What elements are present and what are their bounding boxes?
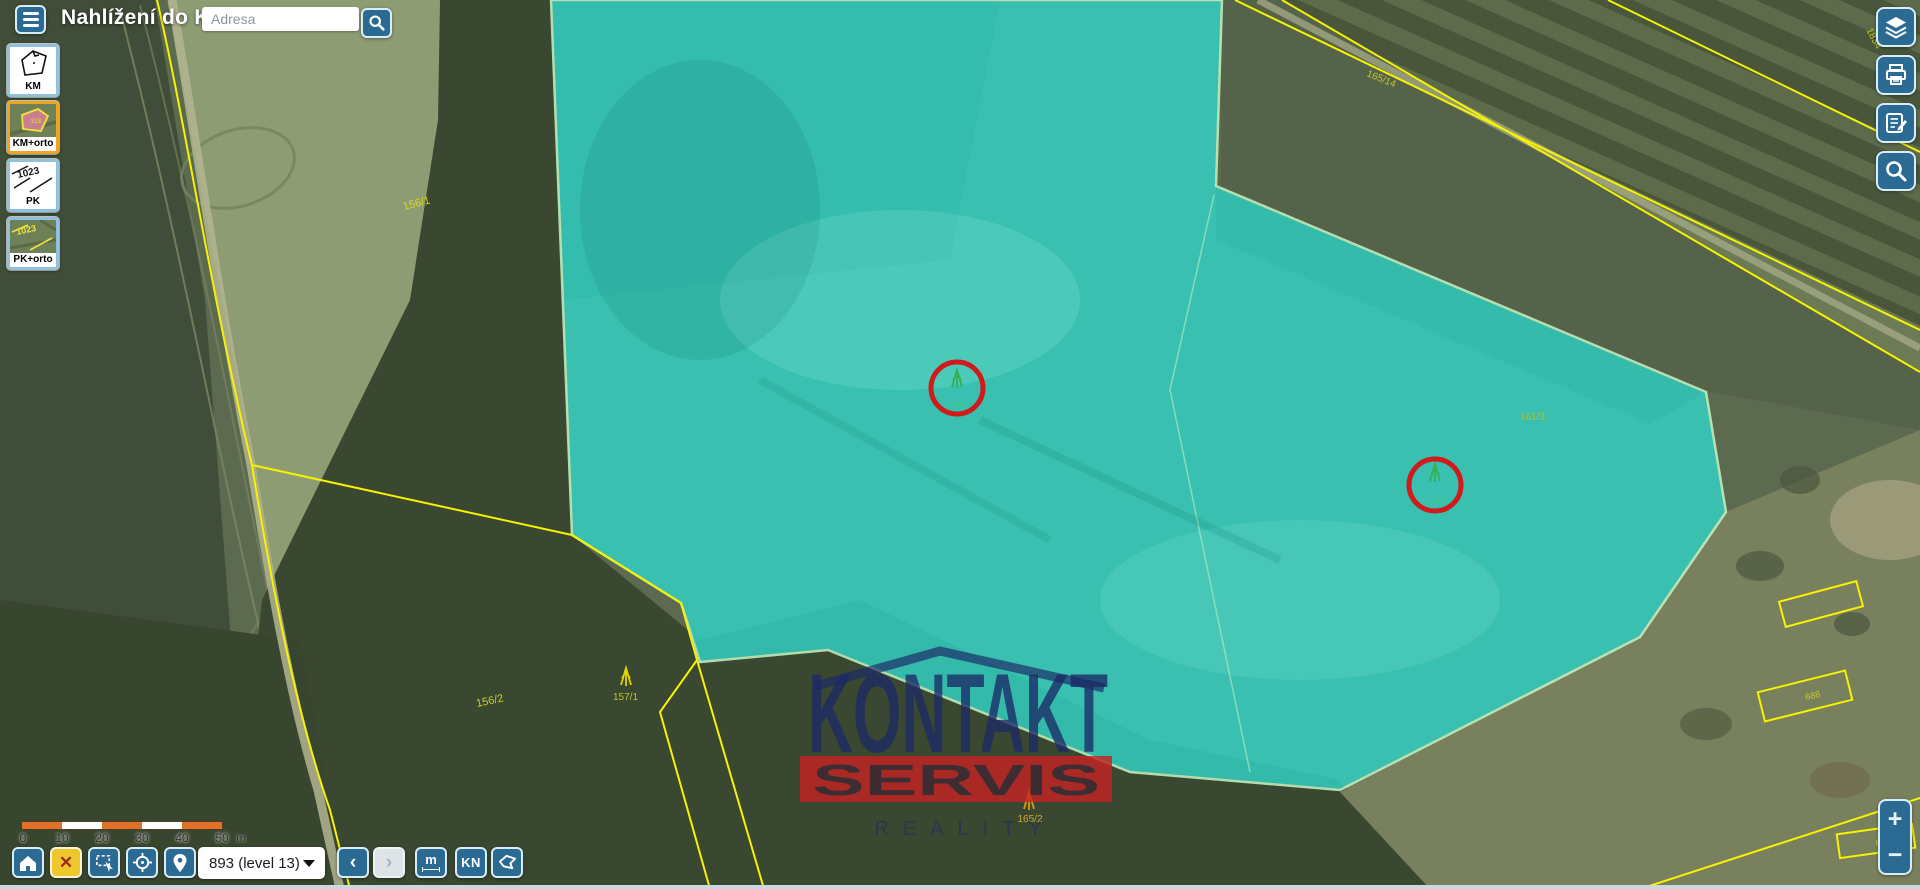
measure-button[interactable]: m <box>415 847 447 878</box>
crosshair-icon <box>132 852 153 873</box>
kn-info-button[interactable]: KN <box>455 847 487 878</box>
scale-tick: 50 <box>215 831 228 845</box>
parcel-label: 160/2 <box>1422 496 1447 507</box>
chevron-left-icon: ‹ <box>350 853 356 872</box>
kn-label: KN <box>461 855 481 870</box>
chevron-down-icon <box>303 860 315 867</box>
watermark-servis: SERVIS <box>812 756 1100 805</box>
scale-unit: m <box>236 831 246 845</box>
print-button[interactable] <box>1876 55 1916 95</box>
scale-bar <box>22 822 222 829</box>
scale-tick: 30 <box>135 831 148 845</box>
close-tool-button[interactable]: ✕ <box>50 847 82 878</box>
pk-orto-thumbnail: 1023 <box>10 220 56 253</box>
printer-icon <box>1884 63 1908 87</box>
forest-bottom-left <box>0 600 345 889</box>
measure-icon: m <box>422 853 440 872</box>
notes-icon <box>1884 111 1908 135</box>
bottom-edge-bar <box>0 885 1920 889</box>
layer-button-km[interactable]: KM <box>7 44 59 97</box>
zoom-control: + − <box>1878 799 1912 875</box>
info-notes-button[interactable] <box>1876 103 1916 143</box>
kn-map-viewer: 160/1 160/2 156/1 165/14 1834 161/3 156/… <box>0 0 1920 889</box>
search-button[interactable] <box>361 8 392 38</box>
layer-label: KM <box>10 80 56 94</box>
zoom-in-button[interactable]: + <box>1880 801 1910 837</box>
page-title: Nahlížení do KN <box>61 6 225 30</box>
km-thumbnail <box>10 47 56 80</box>
layer-label: PK <box>10 195 56 209</box>
chevron-right-icon: › <box>386 853 392 872</box>
home-icon <box>18 853 38 873</box>
bush <box>1810 762 1870 798</box>
pk-thumbnail: 1023 <box>10 162 56 195</box>
scale-tick: 20 <box>95 831 108 845</box>
layer-label: KM+orto <box>10 137 56 151</box>
history-back-button[interactable]: ‹ <box>337 847 369 878</box>
bush <box>1780 466 1820 494</box>
menu-button[interactable] <box>15 5 46 34</box>
location-pin-button[interactable] <box>164 847 196 878</box>
address-search-input[interactable] <box>202 7 359 31</box>
km-orto-thumbnail: 313 <box>10 104 56 137</box>
area-select-button[interactable] <box>88 847 120 878</box>
home-button[interactable] <box>12 847 44 878</box>
select-rectangle-icon <box>94 852 115 873</box>
layer-button-pk[interactable]: 1023 PK <box>7 159 59 212</box>
zoom-level-value: 893 (level 13) <box>209 855 303 872</box>
layers-button[interactable] <box>1876 7 1916 47</box>
locate-crosshair-button[interactable] <box>126 847 158 878</box>
polygon-tool-button[interactable] <box>491 847 523 878</box>
watermark-reality: REALITY <box>874 818 1055 840</box>
parcel-label: 161/3 <box>1520 412 1545 423</box>
magnifier-icon <box>368 14 386 32</box>
layer-button-pk-orto[interactable]: 1023 PK+orto <box>7 217 59 270</box>
history-forward-button[interactable]: › <box>373 847 405 878</box>
layer-label: PK+orto <box>10 253 56 267</box>
map-search-button[interactable] <box>1876 151 1916 191</box>
close-icon: ✕ <box>59 853 73 873</box>
bush <box>1680 708 1732 740</box>
layer-button-km-orto[interactable]: 313 KM+orto <box>7 101 59 154</box>
aerial-map[interactable]: 160/1 160/2 156/1 165/14 1834 161/3 156/… <box>0 0 1920 889</box>
zoom-out-button[interactable]: − <box>1880 837 1910 873</box>
svg-text:313: 313 <box>31 119 42 125</box>
polygon-icon <box>497 853 518 872</box>
parcel-texture <box>580 60 820 360</box>
hamburger-icon <box>23 12 39 15</box>
parcel-label: 157/1 <box>613 692 638 703</box>
bush <box>1834 612 1870 636</box>
scale-tick: 40 <box>175 831 188 845</box>
zoom-level-select[interactable]: 893 (level 13) <box>198 847 325 879</box>
layers-icon <box>1884 15 1908 39</box>
parcel-texture <box>1100 520 1500 680</box>
bush <box>1736 551 1784 581</box>
scale-tick: 10 <box>55 831 68 845</box>
scale-tick: 0 <box>20 831 27 845</box>
map-pin-icon <box>170 853 190 873</box>
magnifier-icon <box>1884 159 1908 183</box>
parcel-label: 160/1 <box>944 400 969 411</box>
